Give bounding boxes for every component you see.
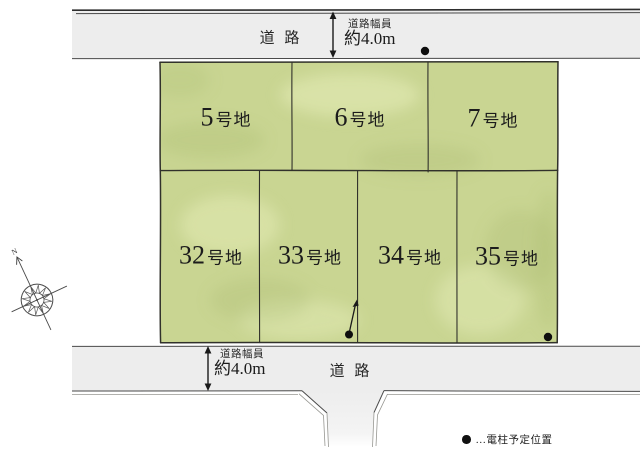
lot-label-33: 33号地 xyxy=(278,240,342,270)
site-plan: N 道 路 道路幅員 約4.0m 5号地 6号地 7号地 32号地 33号地 3… xyxy=(0,0,640,456)
lot-label-5: 5号地 xyxy=(201,102,252,132)
legend-label: …電柱予定位置 xyxy=(476,432,553,447)
lot-label-6: 6号地 xyxy=(335,102,386,132)
utility-pole-dot xyxy=(544,333,552,341)
road-width-caption-top: 道路幅員 約4.0m xyxy=(344,19,395,49)
lot-label-32: 32号地 xyxy=(179,240,243,270)
road-width-caption-top-value: 約4.0m xyxy=(344,30,395,48)
road-width-caption-bottom: 道路幅員 約4.0m xyxy=(214,349,265,379)
compass-north-label: N xyxy=(10,246,19,257)
road-label-bottom: 道 路 xyxy=(330,360,373,381)
utility-pole-dot xyxy=(345,331,353,339)
lot-label-35: 35号地 xyxy=(475,241,539,271)
legend: …電柱予定位置 xyxy=(462,432,553,447)
road-label-top: 道 路 xyxy=(260,27,303,48)
lot-label-34: 34号地 xyxy=(378,240,442,270)
branch-road-surface xyxy=(302,391,384,446)
utility-pole-dot xyxy=(421,47,429,55)
site-plan-drawing: N xyxy=(0,0,640,456)
road-width-caption-bottom-value: 約4.0m xyxy=(214,360,265,378)
lot-label-7: 7号地 xyxy=(468,103,519,133)
utility-pole-legend-dot-icon xyxy=(462,435,471,444)
compass-rose-icon: N xyxy=(0,233,81,341)
